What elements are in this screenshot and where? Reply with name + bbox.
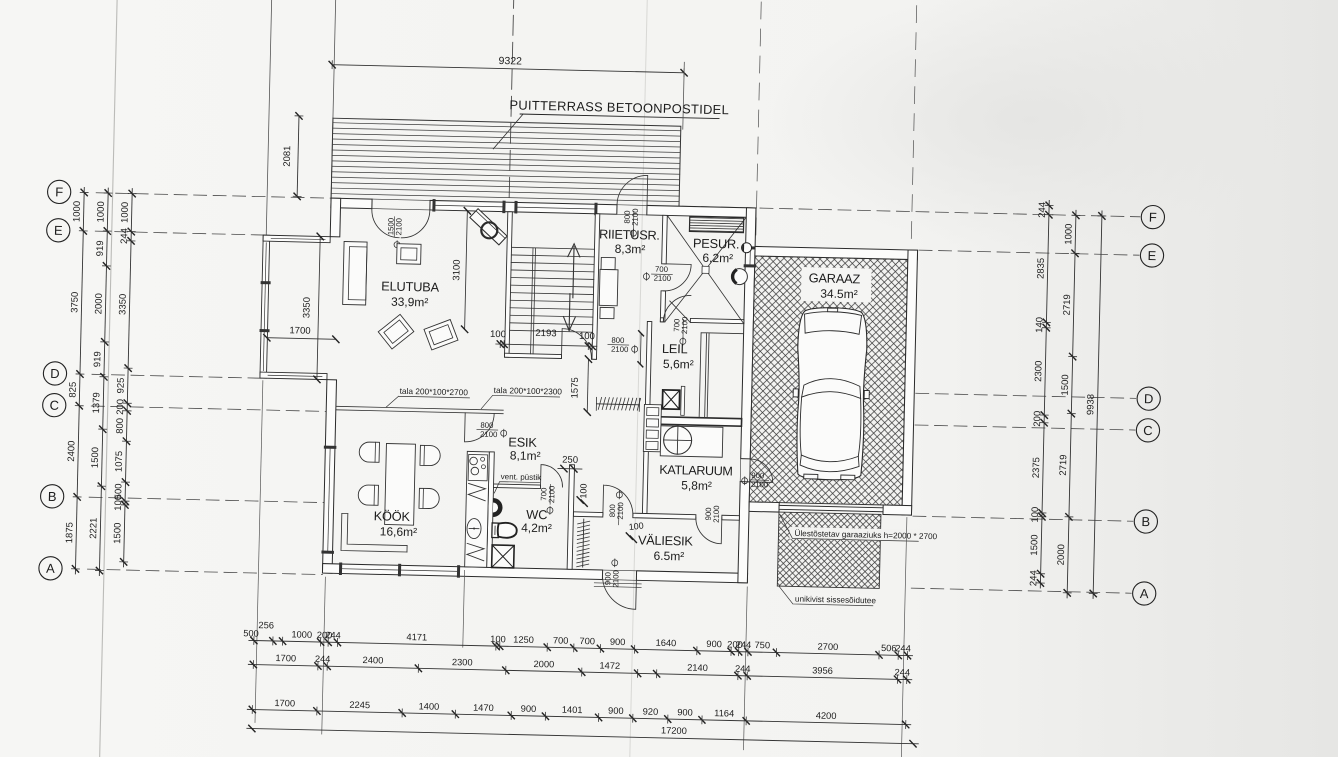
svg-text:2100: 2100 [631,208,640,226]
svg-text:900: 900 [608,706,624,716]
svg-text:tala 200*100*2300: tala 200*100*2300 [494,385,563,397]
svg-text:2245: 2245 [349,700,370,710]
svg-text:B: B [1141,514,1150,529]
svg-text:17200: 17200 [661,725,687,736]
svg-text:2140: 2140 [687,662,708,672]
svg-text:1379: 1379 [91,392,102,413]
svg-text:140: 140 [1034,317,1045,333]
svg-text:800: 800 [115,418,126,434]
svg-text:244: 244 [315,654,331,664]
svg-text:2100: 2100 [616,501,625,519]
svg-text:unikivist sissesõidutee: unikivist sissesõidutee [795,594,877,605]
svg-text:6,2m²: 6,2m² [702,251,733,266]
svg-text:244: 244 [1037,202,1048,218]
svg-text:2100: 2100 [480,430,498,439]
svg-text:2193: 2193 [535,328,556,339]
svg-text:1700: 1700 [274,698,295,708]
svg-text:1500: 1500 [1060,374,1071,395]
svg-text:1401: 1401 [562,705,583,715]
svg-text:244: 244 [736,640,752,650]
svg-text:PESUR.: PESUR. [693,236,740,252]
svg-text:A: A [1140,586,1149,601]
svg-text:2000: 2000 [533,659,554,669]
svg-text:900: 900 [610,637,626,647]
svg-text:1075: 1075 [114,451,125,472]
svg-text:900: 900 [706,639,722,649]
svg-text:C: C [1143,423,1153,438]
svg-text:100: 100 [1030,507,1041,523]
svg-text:500: 500 [243,628,259,638]
svg-text:900: 900 [677,707,693,717]
svg-text:6.5m²: 6.5m² [653,549,684,564]
svg-text:920: 920 [643,706,659,716]
svg-text:800: 800 [480,421,494,430]
svg-text:2100: 2100 [611,569,620,587]
svg-text:250: 250 [562,455,578,466]
svg-text:2719: 2719 [1058,454,1069,475]
svg-text:2081: 2081 [282,145,293,166]
svg-text:100: 100 [113,495,124,511]
svg-text:8,1m²: 8,1m² [510,448,541,463]
svg-text:LEIL: LEIL [662,341,688,357]
svg-text:16,6m²: 16,6m² [380,524,418,539]
svg-text:825: 825 [67,382,78,398]
svg-text:2100: 2100 [680,316,689,334]
svg-text:34.5m²: 34.5m² [820,286,858,301]
svg-text:vent. püstik: vent. püstik [501,472,543,482]
svg-text:F: F [1149,210,1157,225]
svg-text:200: 200 [1032,411,1043,427]
svg-text:1700: 1700 [275,653,296,663]
svg-text:244: 244 [325,630,341,640]
svg-text:750: 750 [754,640,770,650]
svg-text:D: D [50,366,60,381]
svg-text:900: 900 [751,471,765,480]
svg-text:2100: 2100 [654,274,672,283]
svg-text:3100: 3100 [451,259,462,280]
svg-text:100: 100 [490,329,506,340]
svg-text:5,6m²: 5,6m² [663,357,694,372]
svg-text:E: E [54,223,63,238]
svg-text:256: 256 [258,620,274,630]
svg-text:700: 700 [553,635,569,645]
svg-text:4,2m²: 4,2m² [521,521,552,536]
svg-text:8,3m²: 8,3m² [615,242,646,257]
svg-text:GARAAZ: GARAAZ [809,270,861,286]
svg-text:2221: 2221 [88,518,99,539]
svg-text:244: 244 [1028,570,1039,586]
svg-text:919: 919 [92,351,103,367]
svg-text:D: D [1144,391,1154,406]
svg-text:KÖÖK: KÖÖK [374,508,411,524]
svg-text:2400: 2400 [363,655,384,665]
svg-text:2100: 2100 [611,345,629,354]
svg-text:1000: 1000 [71,201,82,222]
svg-text:2000: 2000 [93,293,104,314]
svg-text:2700: 2700 [817,641,838,651]
svg-text:4200: 4200 [816,710,837,720]
svg-text:800: 800 [611,336,625,345]
svg-text:3350: 3350 [117,294,128,315]
svg-text:1500: 1500 [1029,534,1040,555]
svg-text:1250: 1250 [513,634,534,644]
svg-text:1500: 1500 [90,447,101,468]
svg-text:244: 244 [735,664,751,674]
svg-text:2719: 2719 [1062,294,1073,315]
svg-text:1164: 1164 [714,708,734,718]
svg-text:2375: 2375 [1031,457,1042,478]
svg-text:C: C [49,398,59,413]
svg-text:4171: 4171 [406,632,427,642]
svg-text:100: 100 [579,331,595,342]
svg-text:3956: 3956 [812,665,833,675]
svg-text:2835: 2835 [1035,258,1046,279]
svg-text:E: E [1147,248,1156,263]
svg-text:700: 700 [579,636,595,646]
svg-text:100: 100 [628,520,644,532]
svg-text:KATLARUUM: KATLARUUM [659,463,732,479]
svg-text:1470: 1470 [473,703,494,713]
svg-text:244: 244 [894,667,910,677]
svg-text:700: 700 [655,265,669,274]
svg-text:1000: 1000 [95,201,106,222]
svg-text:5,8m²: 5,8m² [681,478,712,493]
svg-text:2100: 2100 [394,217,403,235]
svg-text:9938: 9938 [1085,394,1096,415]
svg-text:1400: 1400 [418,701,439,711]
svg-text:33,9m²: 33,9m² [391,295,429,310]
svg-text:3750: 3750 [69,292,80,313]
svg-text:919: 919 [95,240,106,256]
svg-text:1500: 1500 [112,523,123,544]
svg-text:1000: 1000 [119,202,130,223]
svg-text:tala 200*100*2700: tala 200*100*2700 [400,386,469,398]
svg-text:2400: 2400 [66,440,77,461]
svg-text:F: F [55,184,63,199]
svg-text:2300: 2300 [452,657,473,667]
svg-text:1700: 1700 [289,325,310,336]
svg-text:9322: 9322 [498,55,522,68]
svg-text:1875: 1875 [64,522,75,543]
svg-text:244: 244 [895,643,911,653]
svg-text:925: 925 [115,377,126,393]
svg-text:VÄLIESIK: VÄLIESIK [638,532,694,548]
svg-text:B: B [48,489,57,504]
svg-text:2300: 2300 [1033,361,1044,382]
svg-text:2000: 2000 [1056,544,1067,565]
svg-text:244: 244 [119,228,130,244]
svg-text:2100: 2100 [712,505,721,523]
svg-text:A: A [46,561,55,576]
svg-text:2100: 2100 [751,480,769,489]
svg-text:2100: 2100 [547,485,556,503]
svg-text:900: 900 [521,704,537,714]
svg-text:200: 200 [115,399,126,415]
svg-text:1472: 1472 [599,660,620,670]
svg-text:1000: 1000 [291,629,312,639]
svg-text:ELUTUBA: ELUTUBA [381,278,440,294]
svg-text:100: 100 [578,483,588,498]
svg-text:1575: 1575 [570,377,581,398]
svg-text:100: 100 [490,634,506,644]
svg-text:3350: 3350 [301,297,312,318]
svg-text:1000: 1000 [1063,223,1074,244]
svg-text:RIIETUSR.: RIIETUSR. [599,226,660,242]
svg-text:1640: 1640 [655,638,676,648]
